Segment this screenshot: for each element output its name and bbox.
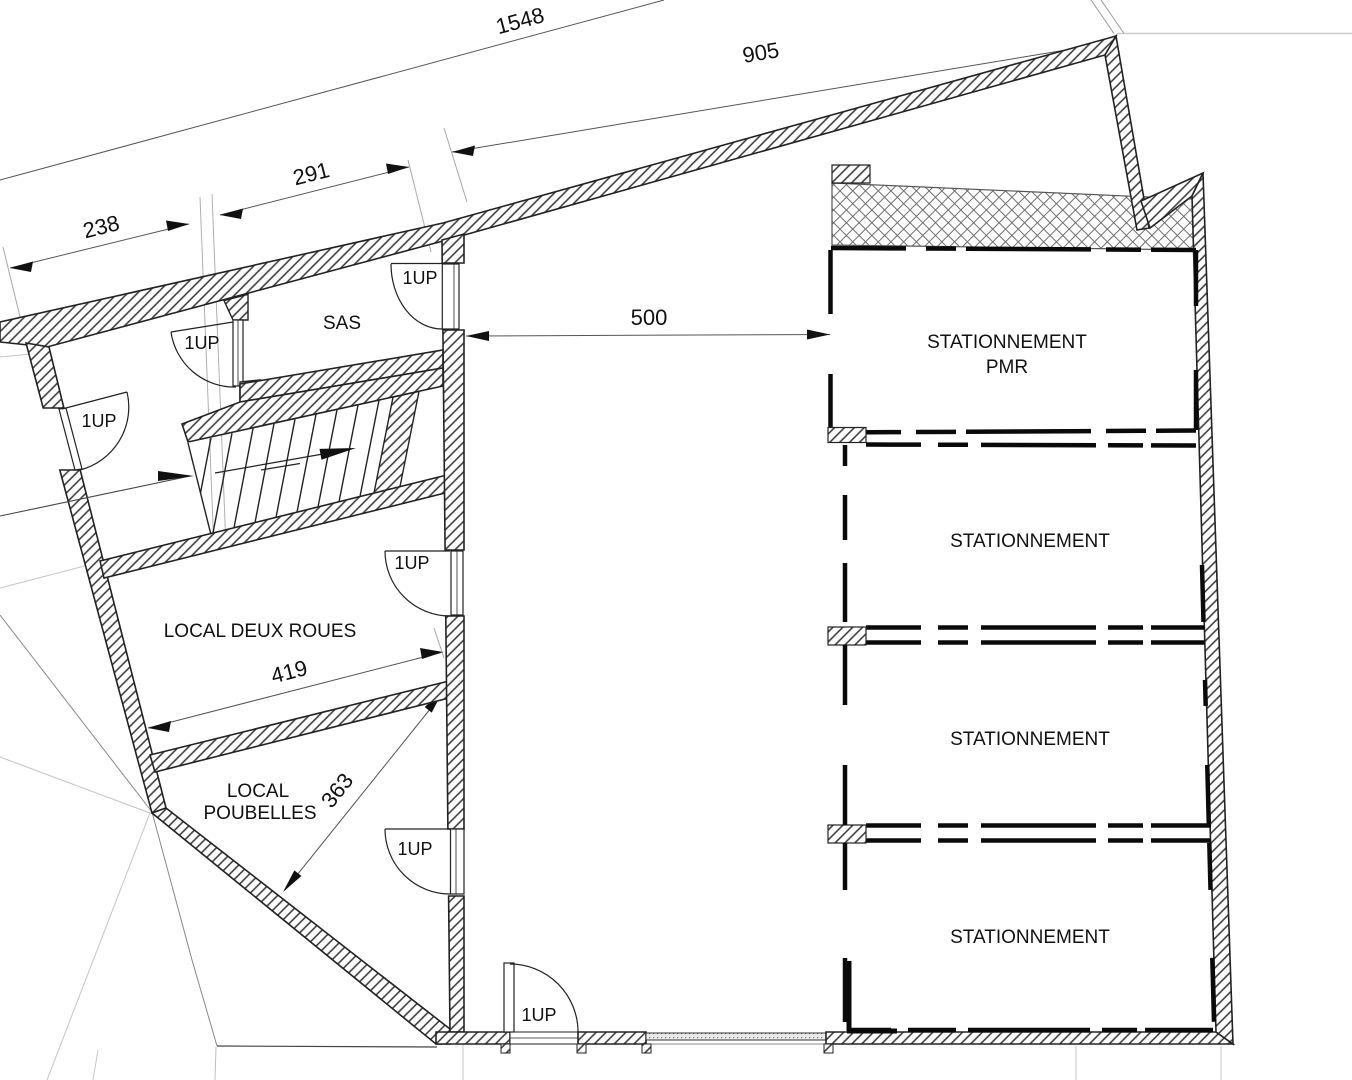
svg-text:STATIONNEMENT: STATIONNEMENT <box>950 531 1110 552</box>
svg-text:SAS: SAS <box>323 313 361 334</box>
svg-text:LOCAL: LOCAL <box>227 781 289 802</box>
svg-text:1UP: 1UP <box>184 333 219 353</box>
svg-text:500: 500 <box>631 305 668 330</box>
svg-text:1UP: 1UP <box>402 268 437 288</box>
svg-text:1UP: 1UP <box>397 839 432 859</box>
svg-text:LOCAL DEUX ROUES: LOCAL DEUX ROUES <box>164 621 357 642</box>
svg-text:1UP: 1UP <box>521 1005 556 1025</box>
svg-text:PMR: PMR <box>986 357 1028 378</box>
svg-text:POUBELLES: POUBELLES <box>204 803 317 824</box>
svg-text:1UP: 1UP <box>81 411 116 431</box>
svg-text:STATIONNEMENT: STATIONNEMENT <box>927 332 1087 353</box>
svg-text:STATIONNEMENT: STATIONNEMENT <box>950 927 1110 948</box>
svg-text:1UP: 1UP <box>394 553 429 573</box>
svg-text:STATIONNEMENT: STATIONNEMENT <box>950 729 1110 750</box>
